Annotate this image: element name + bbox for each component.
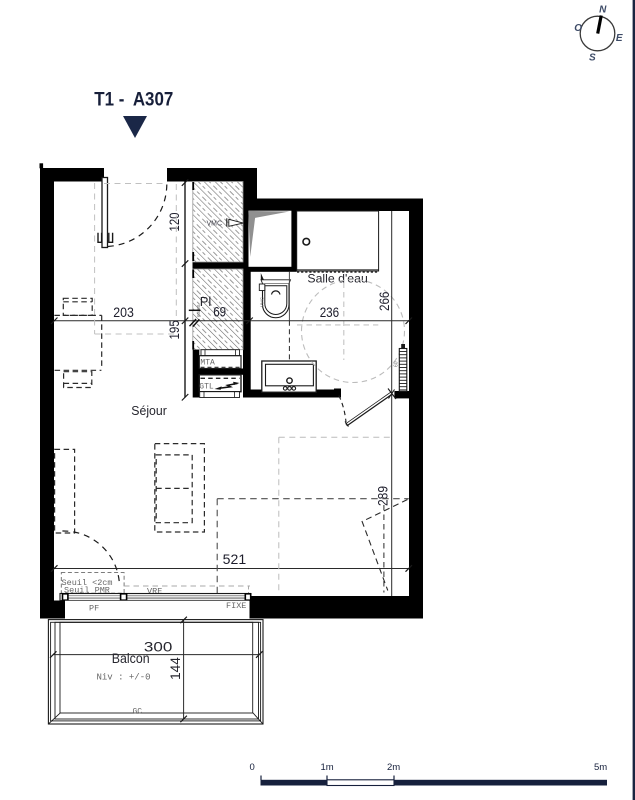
svg-text:521: 521 [223, 552, 247, 567]
svg-text:VMC: VMC [207, 221, 223, 228]
svg-text:120: 120 [167, 212, 182, 231]
svg-text:289: 289 [376, 486, 391, 506]
svg-text:Niv : +/-0: Niv : +/-0 [97, 673, 151, 683]
svg-text:MTA: MTA [200, 358, 215, 367]
svg-text:266: 266 [377, 291, 392, 311]
svg-text:1m: 1m [321, 762, 334, 773]
svg-text:PF: PF [89, 604, 99, 614]
svg-text:E: E [616, 33, 623, 44]
svg-text:GTL: GTL [199, 382, 214, 391]
svg-text:0: 0 [250, 762, 255, 773]
svg-text:69: 69 [213, 305, 226, 320]
svg-text:FIXE: FIXE [226, 601, 246, 611]
svg-text:5m: 5m [594, 762, 607, 773]
svg-text:144: 144 [167, 657, 183, 680]
svg-text:236: 236 [320, 305, 340, 320]
svg-text:195: 195 [167, 320, 182, 340]
svg-text:Balcon: Balcon [112, 650, 150, 666]
svg-text:60: 60 [394, 361, 400, 367]
svg-text:GC: GC [133, 708, 143, 717]
svg-text:203: 203 [113, 305, 134, 320]
svg-text:2m: 2m [387, 762, 400, 773]
svg-text:VMC: VMC [260, 296, 265, 307]
svg-text:T1 - A307: T1 - A307 [94, 88, 173, 110]
svg-text:N: N [599, 5, 607, 16]
svg-text:Pl: Pl [200, 294, 212, 309]
svg-text:O: O [574, 23, 582, 34]
svg-text:S: S [589, 52, 596, 63]
svg-text:Salle d'eau: Salle d'eau [307, 271, 367, 285]
svg-text:Séjour: Séjour [131, 403, 167, 418]
